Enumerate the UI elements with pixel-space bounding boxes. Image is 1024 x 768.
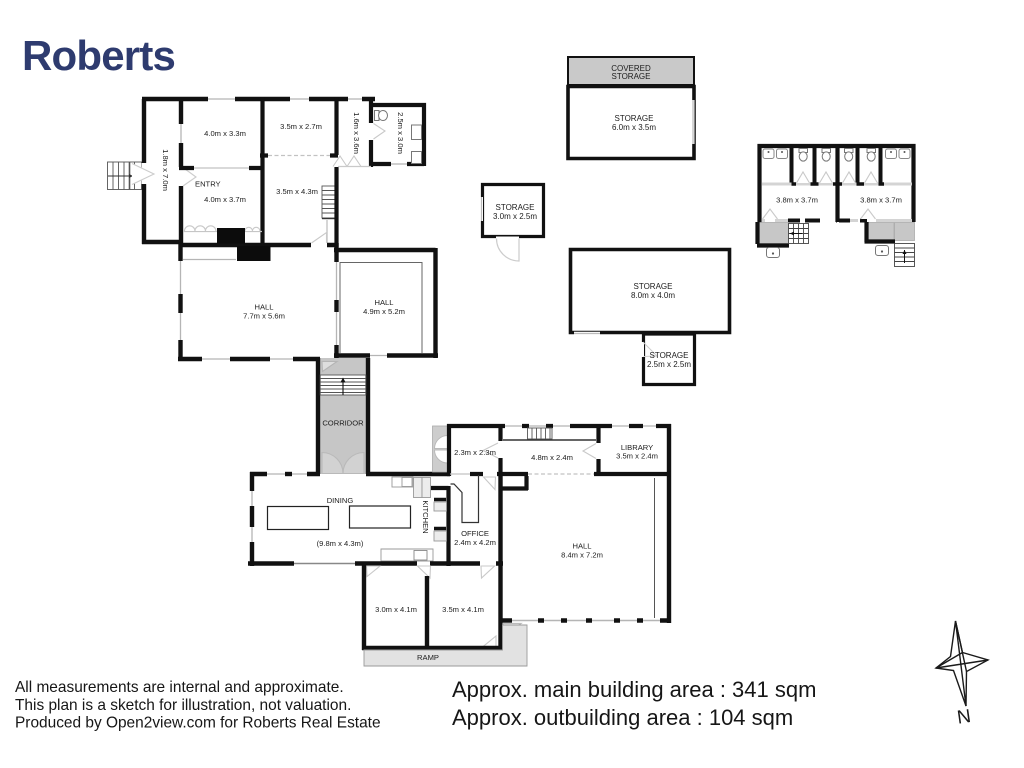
svg-text:(9.8m x 4.3m): (9.8m x 4.3m) (317, 539, 364, 548)
svg-text:2.3m x 2.3m: 2.3m x 2.3m (454, 448, 496, 457)
svg-text:STORAGE: STORAGE (612, 72, 651, 81)
svg-text:Roberts: Roberts (22, 32, 175, 79)
svg-text:1.8m x 7.0m: 1.8m x 7.0m (161, 149, 170, 191)
svg-text:3.5m x 2.4m: 3.5m x 2.4m (616, 452, 658, 461)
svg-text:8.0m x 4.0m: 8.0m x 4.0m (631, 291, 675, 300)
svg-text:STORAGE: STORAGE (615, 114, 654, 123)
svg-text:Produced by Open2view.com for: Produced by Open2view.com for Roberts Re… (15, 715, 381, 732)
svg-text:3.5m x 4.1m: 3.5m x 4.1m (442, 605, 484, 614)
svg-text:4.0m x 3.7m: 4.0m x 3.7m (204, 195, 246, 204)
svg-text:4.8m x 2.4m: 4.8m x 2.4m (531, 453, 573, 462)
svg-text:STORAGE: STORAGE (496, 203, 535, 212)
svg-text:All measurements are internal: All measurements are internal and approx… (15, 679, 344, 696)
svg-text:4.0m x 3.3m: 4.0m x 3.3m (204, 129, 246, 138)
svg-text:2.5m x 2.5m: 2.5m x 2.5m (647, 360, 691, 369)
svg-text:3.0m x 4.1m: 3.0m x 4.1m (375, 605, 417, 614)
svg-text:2.5m x 3.0m: 2.5m x 3.0m (396, 112, 405, 154)
svg-text:1.6m x 3.6m: 1.6m x 3.6m (352, 112, 361, 154)
svg-text:Approx. main building area : 3: Approx. main building area : 341 sqm (452, 677, 816, 702)
svg-text:8.4m x 7.2m: 8.4m x 7.2m (561, 551, 603, 560)
svg-text:3.8m x 3.7m: 3.8m x 3.7m (776, 196, 818, 205)
svg-text:6.0m x 3.5m: 6.0m x 3.5m (612, 123, 656, 132)
svg-text:This plan is a sketch for illu: This plan is a sketch for illustration, … (15, 697, 351, 714)
svg-text:RAMP: RAMP (417, 653, 439, 662)
svg-text:STORAGE: STORAGE (634, 282, 673, 291)
svg-text:OFFICE: OFFICE (461, 529, 489, 538)
svg-text:ENTRY: ENTRY (195, 180, 221, 189)
svg-text:STORAGE: STORAGE (650, 351, 689, 360)
svg-text:3.0m x 2.5m: 3.0m x 2.5m (493, 212, 537, 221)
svg-text:3.5m x 4.3m: 3.5m x 4.3m (276, 187, 318, 196)
svg-text:4.9m x 5.2m: 4.9m x 5.2m (363, 307, 405, 316)
svg-text:HALL: HALL (255, 303, 274, 312)
svg-text:7.7m x 5.6m: 7.7m x 5.6m (243, 312, 285, 321)
svg-text:CORRIDOR: CORRIDOR (322, 419, 364, 428)
svg-text:HALL: HALL (573, 542, 592, 551)
svg-text:3.8m x 3.7m: 3.8m x 3.7m (860, 196, 902, 205)
svg-text:2.4m x 4.2m: 2.4m x 4.2m (454, 538, 496, 547)
svg-text:3.5m x 2.7m: 3.5m x 2.7m (280, 122, 322, 131)
svg-text:N: N (956, 706, 973, 729)
svg-text:DINING: DINING (327, 496, 354, 505)
svg-text:HALL: HALL (375, 298, 394, 307)
svg-text:KITCHEN: KITCHEN (421, 500, 430, 533)
svg-text:Approx. outbuilding area : 104: Approx. outbuilding area : 104 sqm (452, 705, 793, 730)
